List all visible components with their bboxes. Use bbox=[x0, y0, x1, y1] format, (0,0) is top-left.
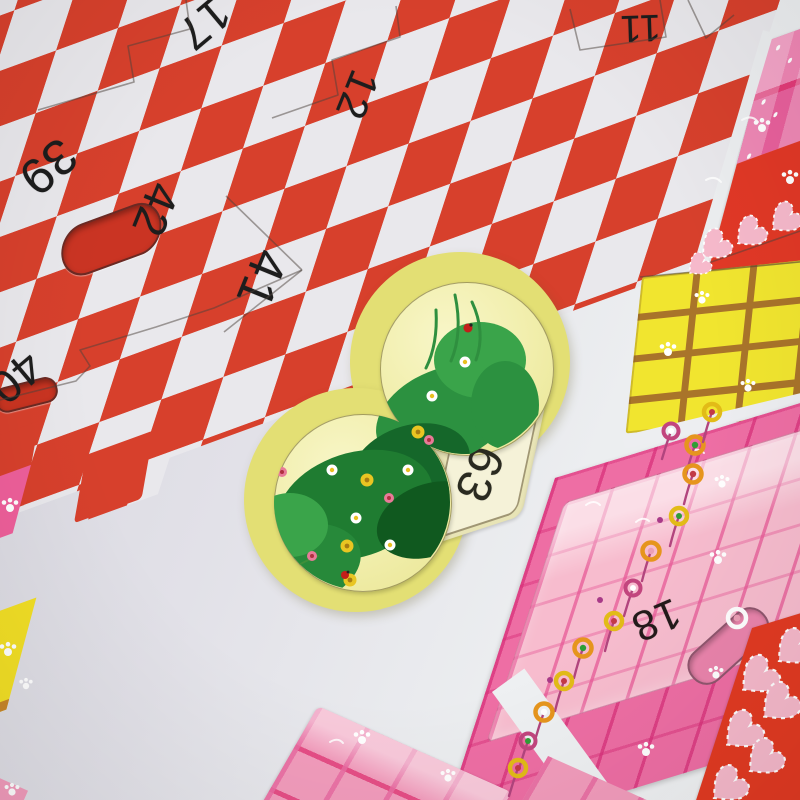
photo-vignette bbox=[0, 0, 800, 800]
puzzle-board-photo: 17 12 11 39 42 41 40 18 63 bbox=[0, 0, 800, 800]
